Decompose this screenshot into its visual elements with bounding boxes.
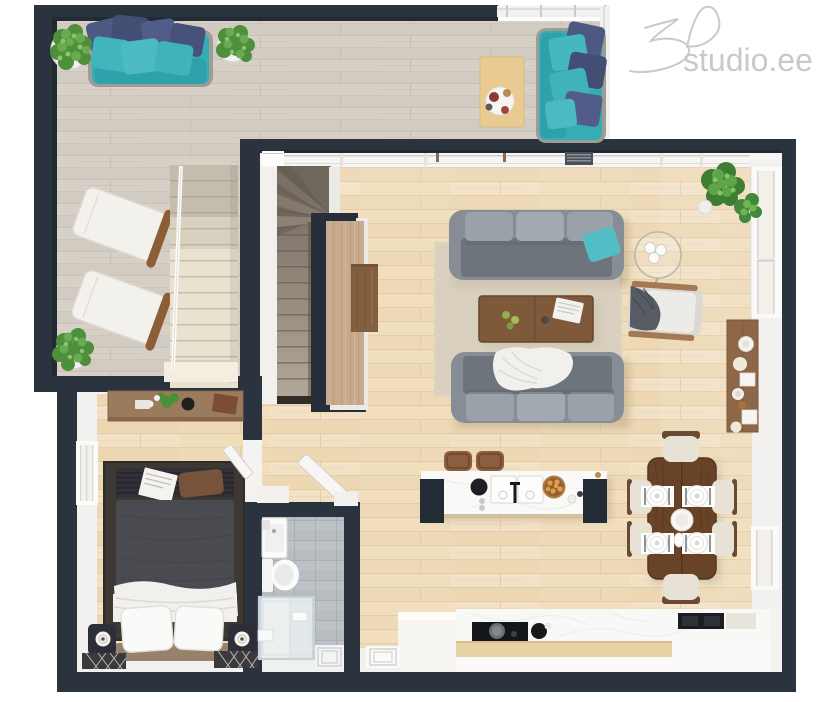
svg-text:studio.ee: studio.ee: [683, 42, 813, 78]
